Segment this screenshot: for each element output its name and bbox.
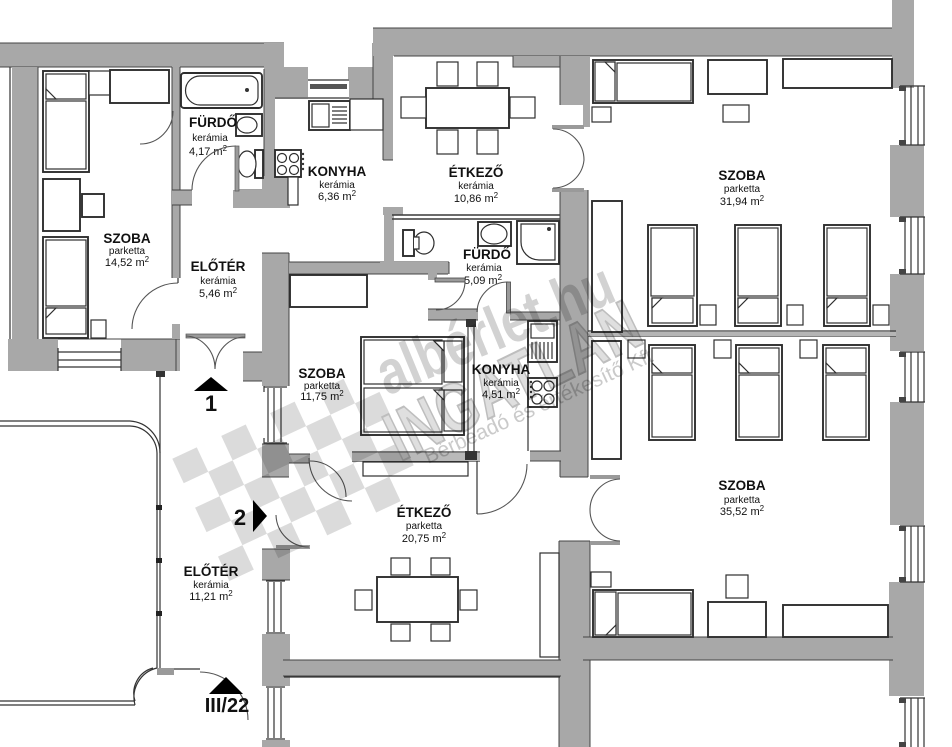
svg-text:kerámia: kerámia	[192, 133, 228, 144]
svg-text:parketta: parketta	[724, 495, 761, 506]
svg-text:SZOBA: SZOBA	[103, 231, 151, 246]
svg-text:kerámia: kerámia	[200, 276, 236, 287]
svg-text:SZOBA: SZOBA	[298, 366, 346, 381]
svg-text:parketta: parketta	[724, 184, 761, 195]
svg-text:SZOBA: SZOBA	[718, 478, 766, 493]
svg-text:11,21 m2: 11,21 m2	[189, 589, 233, 603]
svg-text:ÉTKEZŐ: ÉTKEZŐ	[397, 505, 452, 520]
svg-text:14,52 m2: 14,52 m2	[105, 255, 150, 269]
svg-text:1: 1	[205, 391, 217, 416]
svg-text:parketta: parketta	[109, 246, 146, 257]
svg-text:5,46 m2: 5,46 m2	[199, 286, 238, 300]
svg-text:FÜRDŐ: FÜRDŐ	[463, 247, 511, 262]
svg-text:6,36 m2: 6,36 m2	[318, 189, 357, 203]
svg-text:10,86 m2: 10,86 m2	[454, 191, 499, 205]
svg-text:SZOBA: SZOBA	[718, 168, 766, 183]
svg-text:5,09 m2: 5,09 m2	[464, 273, 503, 287]
svg-text:kerámia: kerámia	[319, 180, 355, 191]
svg-text:kerámia: kerámia	[458, 181, 494, 192]
svg-text:KONYHA: KONYHA	[308, 164, 367, 179]
svg-text:FÜRDŐ: FÜRDŐ	[189, 115, 237, 130]
svg-text:parketta: parketta	[406, 521, 443, 532]
svg-text:ELŐTÉR: ELŐTÉR	[191, 259, 246, 274]
svg-text:35,52 m2: 35,52 m2	[720, 504, 765, 518]
svg-text:31,94 m2: 31,94 m2	[720, 194, 765, 208]
svg-text:20,75 m2: 20,75 m2	[402, 531, 447, 545]
svg-text:ÉTKEZŐ: ÉTKEZŐ	[449, 165, 504, 180]
svg-text:III/22: III/22	[205, 695, 249, 717]
svg-text:kerámia: kerámia	[193, 580, 229, 591]
